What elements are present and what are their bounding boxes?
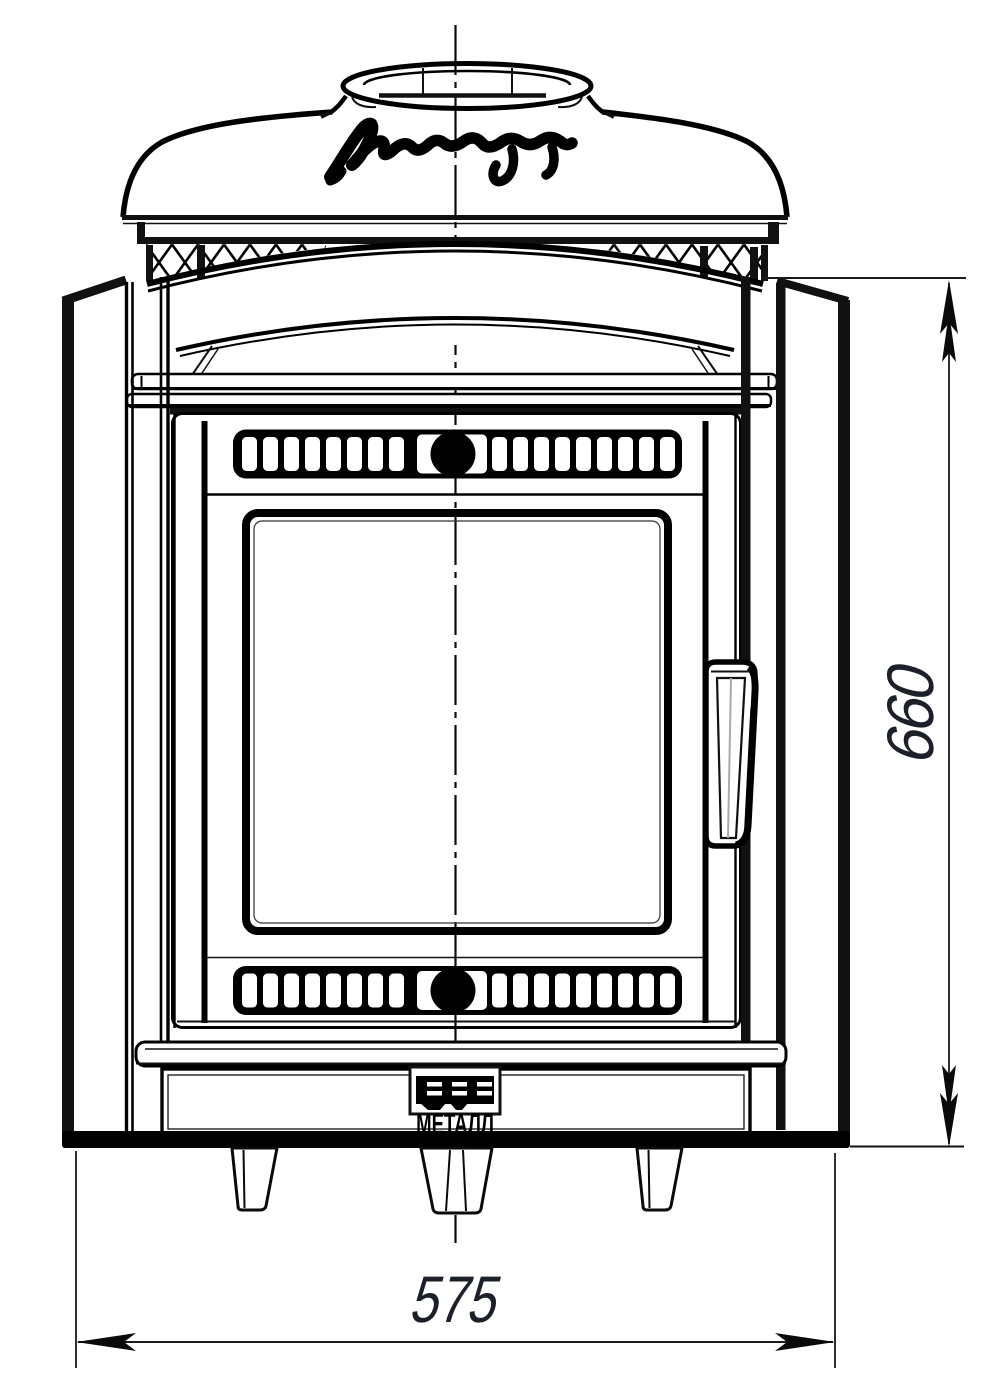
svg-text:660: 660: [873, 656, 947, 769]
